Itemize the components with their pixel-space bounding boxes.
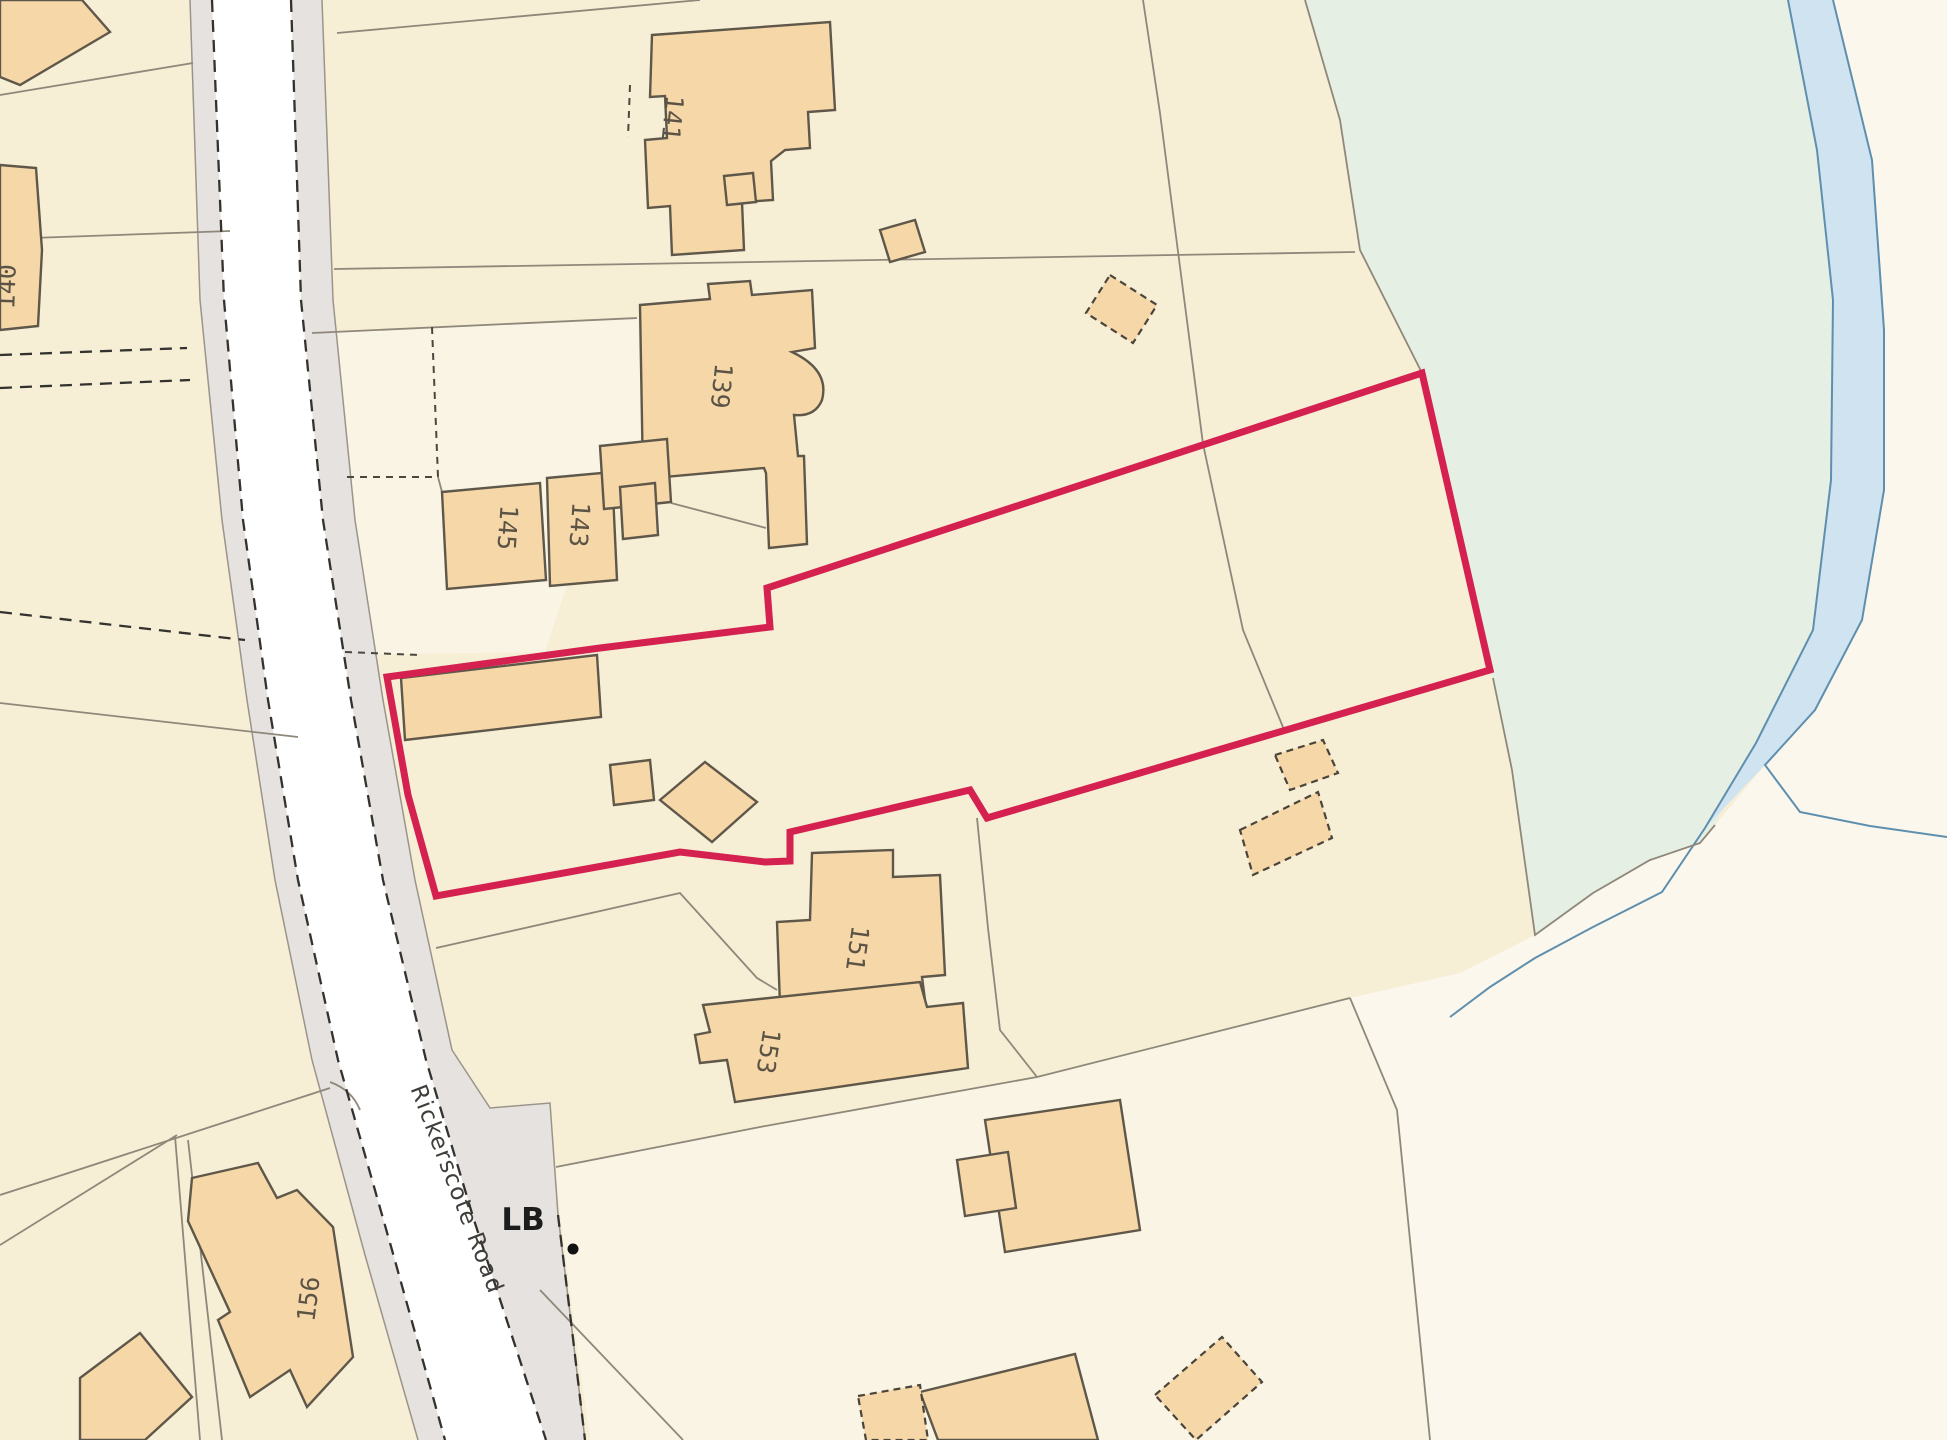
- building-se-house-annex: [957, 1152, 1016, 1216]
- house-number-145: 145: [491, 504, 523, 551]
- house-number-139: 139: [705, 362, 739, 410]
- letter-box-label: LB: [501, 1202, 544, 1238]
- outbuilding-141-south: [724, 173, 756, 205]
- house-number-141: 141: [656, 94, 690, 142]
- letter-box-dot: [568, 1244, 579, 1255]
- outbuilding-small-in-site: [610, 760, 654, 805]
- house-number-156: 156: [291, 1275, 325, 1323]
- house-number-143: 143: [563, 501, 595, 548]
- map-canvas[interactable]: 140 141 139 143 145 151 153 156 Rickersc…: [0, 0, 1947, 1440]
- outbuilding-143-east: [620, 483, 658, 539]
- house-number-140: 140: [0, 264, 22, 310]
